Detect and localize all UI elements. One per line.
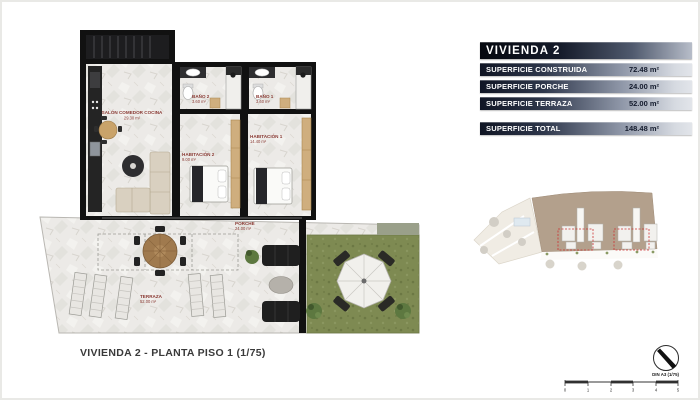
summary-row-label: SUPERFICIE PORCHE: [480, 82, 569, 91]
summary-row-value: 52.00 m²: [629, 99, 659, 108]
surface-summary-table: VIVIENDA 2 SUPERFICIE CONSTRUIDA 72.48 m…: [480, 42, 692, 135]
hedge-strip: [377, 223, 419, 235]
summary-row-label: SUPERFICIE CONSTRUIDA: [480, 65, 587, 74]
label-habitacion2-area: 9.00 m²: [182, 157, 197, 162]
porch-wall: [299, 220, 306, 333]
floor-plan: SALÓN COMEDOR COCINA 29.30 m² BAÑO 2 3.6…: [40, 30, 419, 333]
north-arrow: [654, 346, 679, 371]
plan-caption: VIVIENDA 2 - PLANTA PISO 1 (1/75): [80, 347, 266, 359]
label-porche-area: 24.00 m²: [235, 226, 252, 231]
parasol-seating: [333, 250, 396, 312]
summary-row-value: 148.48 m²: [625, 124, 659, 133]
scale-tick-4: 4: [655, 388, 658, 393]
label-habitacion1-area: 14.40 m²: [250, 139, 267, 144]
summary-row-terraza: SUPERFICIE TERRAZA 52.00 m²: [480, 97, 692, 110]
summary-row-construida: SUPERFICIE CONSTRUIDA 72.48 m²: [480, 63, 692, 76]
site-key-map: [474, 191, 658, 270]
label-habitacion2: HABITACIÓN 2: [182, 150, 215, 157]
scale-tick-5: 5: [677, 388, 680, 393]
scale-tick-0: 0: [564, 388, 567, 393]
summary-row-value: 24.00 m²: [629, 82, 659, 91]
summary-row-label: SUPERFICIE TERRAZA: [480, 99, 573, 108]
label-habitacion1: HABITACIÓN 1: [250, 132, 283, 139]
scale-tick-2: 2: [610, 388, 613, 393]
living-rug: [122, 155, 144, 177]
label-bano2-area: 3.60 m²: [192, 99, 207, 104]
label-bano1-area: 3.60 m²: [256, 99, 271, 104]
summary-title-bar: VIVIENDA 2: [480, 42, 692, 59]
label-salon: SALÓN COMEDOR COCINA: [102, 108, 163, 115]
scale-tick-3: 3: [632, 388, 635, 393]
label-terraza-area: 52.00 m²: [140, 299, 157, 304]
summary-title: VIVIENDA 2: [480, 45, 560, 57]
label-salon-area: 29.30 m²: [124, 116, 141, 121]
stairwell: [86, 35, 169, 59]
scale-bar: 0 1 2 3 4 5: [564, 380, 680, 393]
kitchen-counter: [88, 66, 102, 212]
summary-row-value: 72.48 m²: [629, 65, 659, 74]
summary-row-total: SUPERFICIE TOTAL 148.48 m²: [480, 122, 692, 135]
summary-row-label: SUPERFICIE TOTAL: [480, 124, 561, 133]
plan-sheet-page: SALÓN COMEDOR COCINA 29.30 m² BAÑO 2 3.6…: [0, 0, 700, 400]
scale-tick-1: 1: [587, 388, 590, 393]
summary-row-porche: SUPERFICIE PORCHE 24.00 m²: [480, 80, 692, 93]
din-scale-label: DIN A3 (1/75): [652, 372, 679, 377]
